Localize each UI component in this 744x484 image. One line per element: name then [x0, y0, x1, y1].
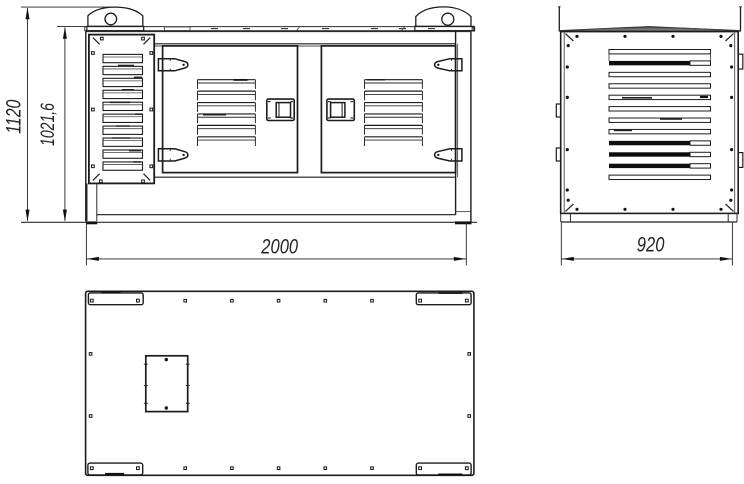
svg-text:920: 920 — [637, 234, 665, 258]
svg-text:2000: 2000 — [260, 235, 298, 259]
svg-text:1021,6: 1021,6 — [37, 103, 59, 146]
svg-text:1120: 1120 — [2, 99, 26, 134]
